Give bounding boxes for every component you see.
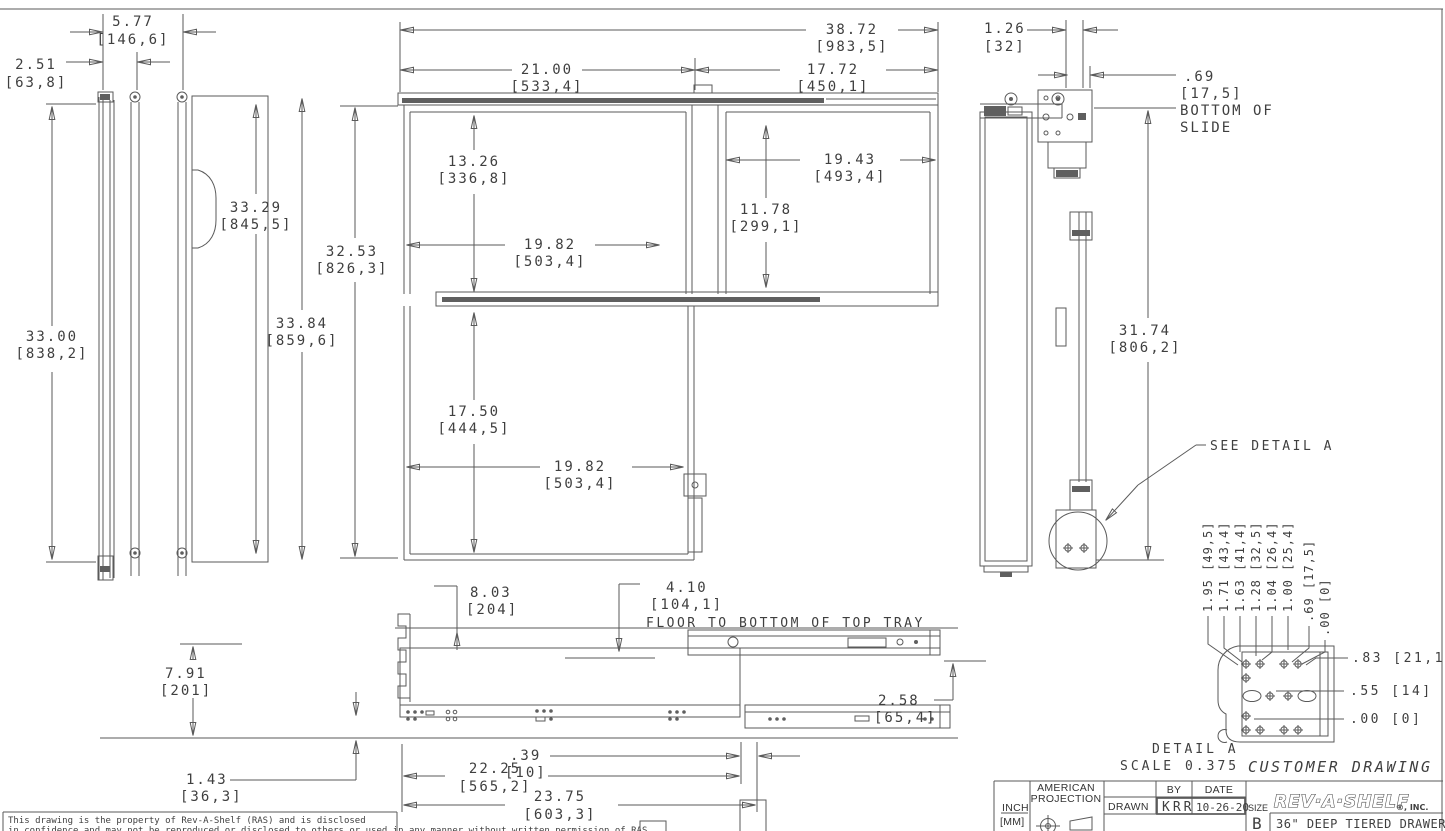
dim-38-72-mm: [983,5] xyxy=(815,39,888,55)
dim-17-50-mm: [444,5] xyxy=(437,421,510,437)
by-label: BY xyxy=(1167,784,1182,796)
disclaimer-line-1: This drawing is the property of Rev-A-Sh… xyxy=(8,816,366,826)
dim-1-26-in: 1.26 xyxy=(984,21,1026,37)
dim-19-43-mm: [493,4] xyxy=(813,169,886,185)
detail-dim-side-1: .55 [14] xyxy=(1350,684,1433,699)
dim-22-25-mm: [565,2] xyxy=(458,779,531,795)
dim-17-72-in: 17.72 xyxy=(807,62,859,78)
dim-13-26-mm: [336,8] xyxy=(437,171,510,187)
dim-19-82a-mm: [503,4] xyxy=(513,254,586,270)
note-bottom-of-slide-2: SLIDE xyxy=(1180,120,1232,136)
detail-dim-rot-1: 1.71 [43,4] xyxy=(1217,522,1231,612)
dim-1-26-mm: [32] xyxy=(984,39,1026,55)
dim-0-69-in: .69 xyxy=(1184,69,1215,85)
dim-13-26-in: 13.26 xyxy=(448,154,500,170)
dim-4-10-mm: [104,1] xyxy=(650,597,723,613)
detail-dim-rot-0: 1.95 [49,5] xyxy=(1201,522,1215,612)
detail-a-label: DETAIL A xyxy=(1152,742,1239,757)
dim-33-84-mm: [859,6] xyxy=(265,333,338,349)
detail-dim-rot-2: 1.63 [41,4] xyxy=(1233,522,1247,612)
dim-8-03-mm: [204] xyxy=(466,602,518,618)
dim-19-43-in: 19.43 xyxy=(824,152,876,168)
drawn-label: DRAWN xyxy=(1108,801,1149,813)
detail-a-circle xyxy=(1049,512,1107,570)
dim-7-91-mm: [201] xyxy=(160,683,212,699)
drawing-canvas: 5.77 [146,6] 2.51 [63,8] 33.00 [838,2] 3… xyxy=(0,0,1445,831)
dim-22-25-in: 22.25 xyxy=(469,761,521,777)
dim-11-78-mm: [299,1] xyxy=(729,219,802,235)
dim-5-77-in: 5.77 xyxy=(112,14,154,30)
dim-1-43-mm: [36,3] xyxy=(180,789,243,805)
dim-17-50-in: 17.50 xyxy=(448,404,500,420)
dim-17-72-mm: [450,1] xyxy=(796,79,869,95)
note-floor-to-bottom: FLOOR TO BOTTOM OF TOP TRAY xyxy=(646,616,925,631)
title-block: INCH [MM] AMERICAN PROJECTION DRAWN BY D… xyxy=(994,781,1445,831)
projection-label-2: PROJECTION xyxy=(1031,793,1102,805)
dim-19-82b-mm: [503,4] xyxy=(543,476,616,492)
front-view-geometry xyxy=(98,92,268,580)
units-mm-label: [MM] xyxy=(1000,816,1025,828)
dim-38-72-in: 38.72 xyxy=(826,22,878,38)
dim-31-74-mm: [806,2] xyxy=(1108,340,1181,356)
dim-2-51-mm: [63,8] xyxy=(5,75,68,91)
dim-32-53-mm: [826,3] xyxy=(315,261,388,277)
units-inch-label: INCH xyxy=(1002,802,1029,814)
side-view-geometry xyxy=(980,90,1107,577)
detail-dim-side-2: .00 [0] xyxy=(1350,712,1422,727)
dim-32-53-in: 32.53 xyxy=(326,244,378,260)
dim-0-69-mm: [17,5] xyxy=(1180,86,1243,102)
detail-dim-rot-5: 1.00 [25,4] xyxy=(1281,522,1295,612)
dim-2-51-in: 2.51 xyxy=(15,57,57,73)
dim-8-03-in: 8.03 xyxy=(470,585,512,601)
dim-4-10-in: 4.10 xyxy=(666,580,708,596)
date-label: DATE xyxy=(1205,784,1233,796)
dim-19-82b-in: 19.82 xyxy=(554,459,606,475)
side-view-dimensions: 1.26 [32] .69 [17,5] BOTTOM OF SLIDE 31.… xyxy=(984,20,1334,560)
dim-21-00-mm: [533,4] xyxy=(510,79,583,95)
dim-1-43-in: 1.43 xyxy=(186,772,228,788)
drawn-by-value: KRR xyxy=(1162,800,1194,815)
company-logo: REV·A·SHELF xyxy=(1274,792,1409,812)
dim-2-58-mm: [65,4] xyxy=(874,710,937,726)
dim-5-77-mm: [146,6] xyxy=(96,32,169,48)
customer-drawing-label: CUSTOMER DRAWING xyxy=(1248,758,1433,776)
note-bottom-of-slide-1: BOTTOM OF xyxy=(1180,103,1274,119)
dim-7-91-in: 7.91 xyxy=(165,666,207,682)
dim-23-75-mm: [603,3] xyxy=(523,807,596,823)
see-detail-a-callout: SEE DETAIL A xyxy=(1210,439,1334,454)
projection-symbol-icon xyxy=(1036,815,1092,831)
detail-dim-rot-7: .00 [0] xyxy=(1318,578,1332,636)
dim-33-84-in: 33.84 xyxy=(276,316,328,332)
size-label: SIZE xyxy=(1248,803,1268,813)
detail-dim-rot-6: .69 [17,5] xyxy=(1302,540,1316,622)
disclaimer-line-2: in confidence and may not be reproduced … xyxy=(8,826,647,831)
dim-33-29-in: 33.29 xyxy=(230,200,282,216)
dim-33-00-in: 33.00 xyxy=(26,329,78,345)
cad-sheet: 5.77 [146,6] 2.51 [63,8] 33.00 [838,2] 3… xyxy=(0,0,1445,831)
dim-2-58-in: 2.58 xyxy=(878,693,920,709)
detail-dim-side-0: .83 [21,1] xyxy=(1352,651,1445,666)
company-logo-suffix: ®, INC. xyxy=(1396,803,1428,812)
dim-11-78-in: 11.78 xyxy=(740,202,792,218)
detail-dim-rot-4: 1.04 [26,4] xyxy=(1265,522,1279,612)
detail-a-scale: SCALE 0.375 xyxy=(1120,759,1239,774)
dim-33-29-mm: [845,5] xyxy=(219,217,292,233)
size-value: B xyxy=(1252,814,1262,831)
dim-19-82a-in: 19.82 xyxy=(524,237,576,253)
date-value: 10-26-20 xyxy=(1196,801,1249,814)
bottom-view-dimensions: 8.03 [204] 4.10 [104,1] FLOOR TO BOTTOM … xyxy=(160,580,986,823)
detail-dim-rot-3: 1.28 [32,5] xyxy=(1249,522,1263,612)
dim-33-00-mm: [838,2] xyxy=(15,346,88,362)
detail-a-view: 1.95 [49,5] 1.71 [43,4] 1.63 [41,4] 1.28… xyxy=(1120,522,1445,774)
dim-31-74-in: 31.74 xyxy=(1119,323,1171,339)
dim-23-75-in: 23.75 xyxy=(534,789,586,805)
dim-21-00-in: 21.00 xyxy=(521,62,573,78)
part-title: 36" DEEP TIERED DRAWER xyxy=(1276,817,1445,831)
